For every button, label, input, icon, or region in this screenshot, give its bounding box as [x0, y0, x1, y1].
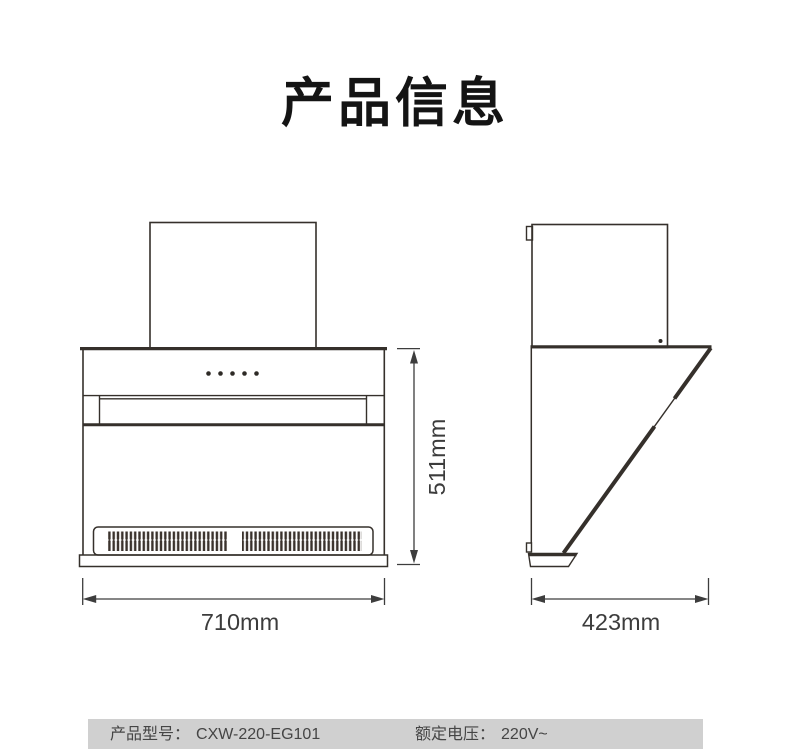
slanted-panel — [564, 348, 711, 553]
handle-band — [83, 396, 384, 425]
model-value: CXW-220-EG101 — [196, 726, 320, 743]
rear-foot-tab — [527, 543, 532, 552]
front-height-label: 511mm — [424, 419, 450, 496]
vent-grille — [94, 527, 374, 555]
spec-bar: 产品型号：CXW-220-EG101 额定电压：220V~ — [88, 719, 703, 749]
dimension-drawings: 710mm 511mm — [0, 200, 790, 660]
dimension-depth: 423mm — [532, 578, 709, 635]
control-buttons-dots — [206, 371, 259, 376]
grille-slats-right — [242, 532, 362, 552]
product-info-page: 产品信息 — [0, 0, 790, 749]
front-view-drawing — [80, 223, 388, 567]
voltage-spec: 额定电压：220V~ — [415, 719, 548, 749]
dimension-width: 710mm — [83, 578, 385, 635]
side-base — [529, 554, 578, 567]
screw-dot — [659, 339, 663, 343]
grille-slats-left — [107, 532, 227, 552]
side-view-drawing — [527, 225, 712, 567]
base-plate — [80, 555, 388, 567]
voltage-value: 220V~ — [501, 726, 548, 743]
model-label: 产品型号： — [110, 726, 190, 743]
side-chimney — [532, 225, 668, 348]
model-spec: 产品型号：CXW-220-EG101 — [110, 719, 320, 749]
front-width-label: 710mm — [201, 609, 279, 635]
dimension-height: 511mm — [397, 349, 450, 565]
front-chimney — [150, 223, 316, 349]
side-depth-label: 423mm — [582, 609, 660, 635]
page-title: 产品信息 — [0, 74, 790, 135]
voltage-label: 额定电压： — [415, 726, 495, 743]
